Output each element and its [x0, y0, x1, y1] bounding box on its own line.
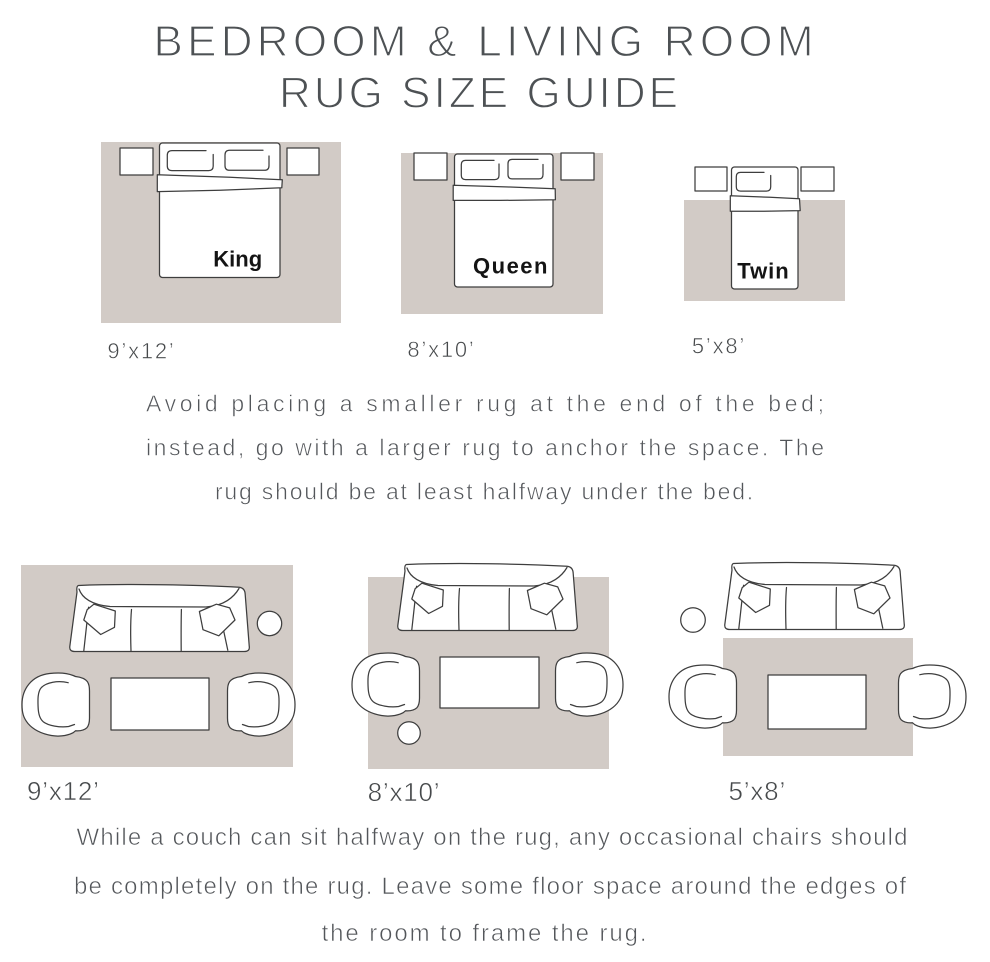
svg-text:BEDROOM & LIVING ROOM: BEDROOM & LIVING ROOM — [154, 17, 814, 66]
svg-text:9’x12’: 9’x12’ — [27, 776, 100, 806]
svg-text:Queen: Queen — [473, 253, 549, 278]
svg-text:King: King — [213, 246, 262, 271]
svg-text:8’x10’: 8’x10’ — [368, 777, 441, 807]
svg-text:the room to frame the rug.: the room to frame the rug. — [322, 920, 649, 947]
svg-text:be completely on the rug. Leav: be completely on the rug. Leave some flo… — [74, 873, 906, 900]
svg-text:5’x8’: 5’x8’ — [729, 776, 786, 806]
svg-text:instead, go with a larger rug: instead, go with a larger rug to anchor … — [146, 435, 824, 461]
svg-text:rug should be at least halfway: rug should be at least halfway under the… — [215, 479, 755, 505]
svg-text:9’x12’: 9’x12’ — [107, 339, 175, 364]
svg-text:While a couch can sit halfway: While a couch can sit halfway on the rug… — [77, 824, 908, 851]
svg-text:5’x8’: 5’x8’ — [692, 334, 746, 359]
svg-text:Twin: Twin — [737, 259, 789, 284]
svg-text:RUG SIZE GUIDE: RUG SIZE GUIDE — [279, 69, 678, 118]
svg-text:8’x10’: 8’x10’ — [407, 337, 475, 362]
